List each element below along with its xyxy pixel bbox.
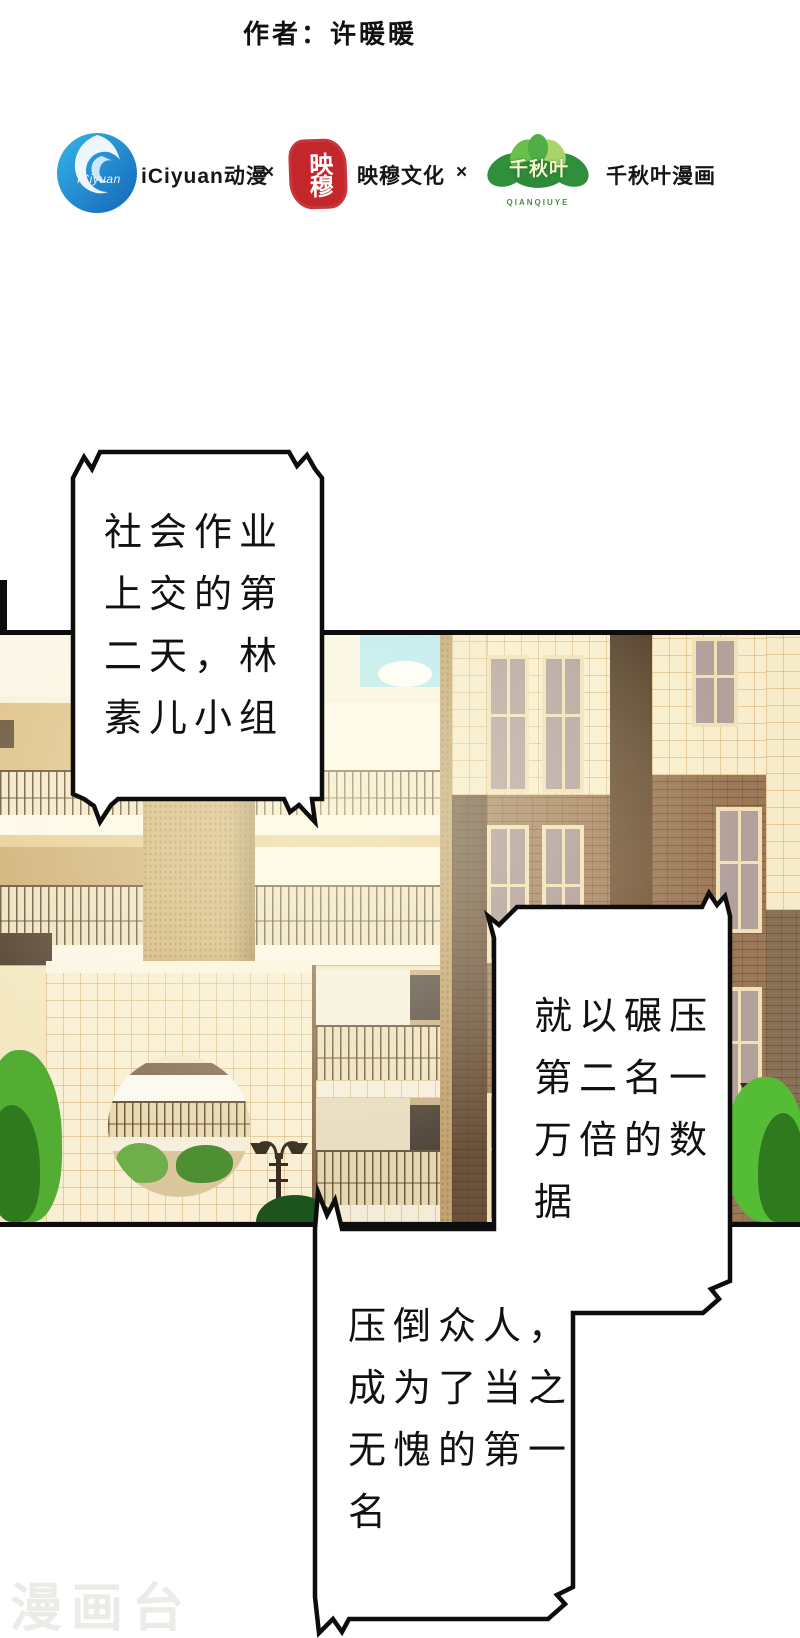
qianqiuye-label: 千秋叶漫画 (606, 160, 716, 190)
window-slots-dark (0, 933, 52, 965)
balcony-railing-3 (316, 1025, 455, 1082)
window-4 (542, 825, 584, 963)
balcony-railing-4 (316, 1150, 455, 1207)
window-2 (542, 655, 584, 793)
window-5 (487, 1093, 529, 1222)
courtyard-bush-1 (116, 1143, 168, 1183)
window-slot (0, 720, 14, 748)
courtyard-window (108, 1075, 250, 1101)
author-credit: 作者：许暖暖 (243, 14, 417, 51)
window-8 (716, 807, 762, 933)
qianqiuye-logo-subtext: QIANQIUYE (478, 198, 598, 207)
speech-bubble-1-text: 社会作业 上交的第 二天，林 素儿小组 (104, 502, 304, 750)
facade-strip-cream (452, 635, 487, 795)
window-7 (692, 637, 738, 727)
courtyard-lintel (108, 1063, 250, 1075)
qianqiuye-logo-text: 千秋叶 (496, 154, 582, 181)
right-edge-cream (766, 635, 800, 910)
cloud (378, 661, 432, 687)
window-3 (487, 825, 529, 963)
yingmu-seal-icon: 映穆 (288, 138, 348, 210)
wall-cap-slab (46, 961, 312, 973)
separator-x-2: × (456, 162, 467, 184)
lit-opening-2 (250, 847, 455, 885)
courtyard-railing (108, 1101, 250, 1139)
pilaster (440, 635, 452, 1222)
balcony-slab-1 (316, 1080, 455, 1098)
qianqiuye-leaf-icon: 千秋叶 QIANQIUYE (478, 128, 598, 208)
facade-strip-brick (452, 795, 487, 1222)
yingmu-label: 映穆文化 (357, 160, 445, 190)
iciyuan-logo-text: iCiyuan (64, 172, 134, 186)
iciyuan-label: iCiyuan动漫 (141, 160, 268, 190)
yingmu-seal-text: 映穆 (306, 152, 331, 196)
comic-page: 作者：许暖暖 iCiyuan iCiyuan动漫 × 映穆 映穆文化 × (0, 0, 800, 1638)
window-1 (487, 655, 529, 793)
speech-bubble-2-text: 就以碾压 第二名一 万倍的数 据 (534, 986, 734, 1234)
speech-bubble-3-text: 压倒众人， 成为了当之 无愧的第一 名 (348, 1296, 588, 1544)
balcony-slab-2 (316, 1205, 455, 1222)
balcony-lit-wall (316, 970, 410, 1025)
watermark: 漫画台 (10, 1566, 193, 1638)
separator-x-1: × (263, 162, 274, 184)
